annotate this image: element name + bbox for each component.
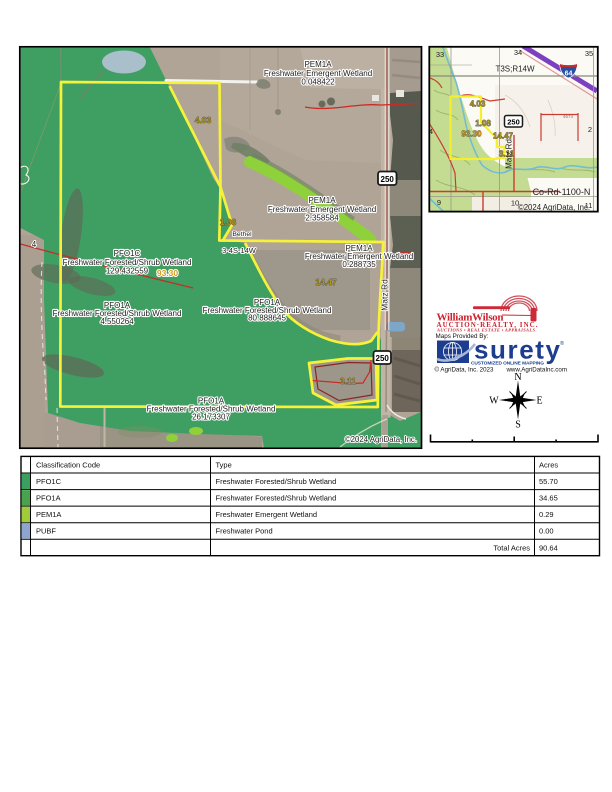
- svg-text:3.11: 3.11: [340, 376, 356, 386]
- svg-text:64: 64: [565, 71, 573, 78]
- svg-text:Classification Code: Classification Code: [36, 461, 100, 470]
- svg-text:80.888645: 80.888645: [248, 314, 286, 323]
- svg-text:0.29: 0.29: [539, 510, 554, 519]
- svg-text:33: 33: [436, 50, 444, 59]
- svg-text:9: 9: [437, 198, 441, 207]
- svg-text:2.358584: 2.358584: [305, 214, 339, 223]
- svg-text:Matz Rd: Matz Rd: [505, 139, 514, 169]
- svg-text:Freshwater Emergent Wetland: Freshwater Emergent Wetland: [216, 510, 318, 519]
- svg-text:© AgriData, Inc. 2023: © AgriData, Inc. 2023: [435, 367, 494, 374]
- svg-text:PFO1C: PFO1C: [114, 249, 141, 258]
- svg-text:14.47: 14.47: [315, 277, 337, 287]
- svg-text:0.048422: 0.048422: [301, 78, 335, 87]
- svg-text:4: 4: [32, 240, 37, 249]
- svg-text:N: N: [514, 372, 521, 383]
- svg-text:93.30: 93.30: [157, 268, 179, 278]
- svg-text:4674: 4674: [563, 114, 574, 119]
- svg-text:Co-Rd-1100-N: Co-Rd-1100-N: [533, 187, 591, 197]
- svg-text:4.03: 4.03: [470, 100, 486, 109]
- svg-text:250: 250: [376, 354, 390, 363]
- svg-text:Freshwater Forested/Shrub Wetl: Freshwater Forested/Shrub Wetland: [216, 494, 337, 503]
- svg-text:90.64: 90.64: [539, 543, 558, 552]
- svg-text:4.550264: 4.550264: [100, 317, 134, 326]
- svg-text:PUBF: PUBF: [36, 527, 56, 536]
- svg-text:3-4S-14W: 3-4S-14W: [222, 246, 257, 255]
- svg-text:Total Acres: Total Acres: [493, 543, 530, 552]
- svg-text:PEM1A: PEM1A: [308, 196, 336, 205]
- svg-text:55.70: 55.70: [539, 477, 558, 486]
- svg-text:©2024 AgriData, Inc.: ©2024 AgriData, Inc.: [345, 435, 417, 444]
- svg-text:©2024 AgriData, Inc.: ©2024 AgriData, Inc.: [518, 203, 590, 212]
- svg-text:1.08: 1.08: [220, 217, 237, 227]
- svg-text:129.432559: 129.432559: [106, 267, 149, 276]
- svg-text:Matz Rd: Matz Rd: [380, 279, 390, 311]
- svg-text:PEM1A: PEM1A: [304, 60, 332, 69]
- svg-text:34: 34: [514, 48, 522, 57]
- svg-text:Freshwater Forested/Shrub Wetl: Freshwater Forested/Shrub Wetland: [216, 477, 337, 486]
- svg-text:Acres: Acres: [539, 461, 558, 470]
- svg-text:S: S: [515, 420, 521, 431]
- svg-text:Freshwater Pond: Freshwater Pond: [216, 527, 273, 536]
- svg-text:26.173307: 26.173307: [192, 413, 230, 422]
- svg-text:surety: surety: [474, 335, 561, 365]
- svg-text:93.30: 93.30: [461, 130, 482, 139]
- svg-text:0.00: 0.00: [539, 527, 554, 536]
- svg-text:T3S;R14W: T3S;R14W: [495, 65, 535, 74]
- svg-text:34.65: 34.65: [539, 494, 558, 503]
- svg-text:W: W: [489, 396, 499, 407]
- svg-text:Type: Type: [216, 461, 232, 470]
- svg-text:PEM1A: PEM1A: [36, 510, 61, 519]
- svg-text:PFO1C: PFO1C: [36, 477, 62, 486]
- svg-text:250: 250: [381, 175, 395, 184]
- svg-text:Bethel: Bethel: [232, 231, 252, 238]
- svg-text:2: 2: [588, 125, 592, 134]
- svg-text:E: E: [536, 396, 542, 407]
- svg-text:1.08: 1.08: [475, 119, 491, 128]
- svg-text:®: ®: [560, 340, 564, 347]
- svg-text:0.288735: 0.288735: [342, 260, 376, 269]
- svg-text:250: 250: [507, 118, 520, 127]
- svg-text:35: 35: [585, 49, 593, 58]
- svg-text:AUCTIONS • REAL ESTATE • A: AUCTIONS • REAL ESTATE • APPRAISALS: [436, 328, 535, 333]
- svg-text:PFO1A: PFO1A: [36, 494, 61, 503]
- svg-text:4.03: 4.03: [195, 115, 212, 125]
